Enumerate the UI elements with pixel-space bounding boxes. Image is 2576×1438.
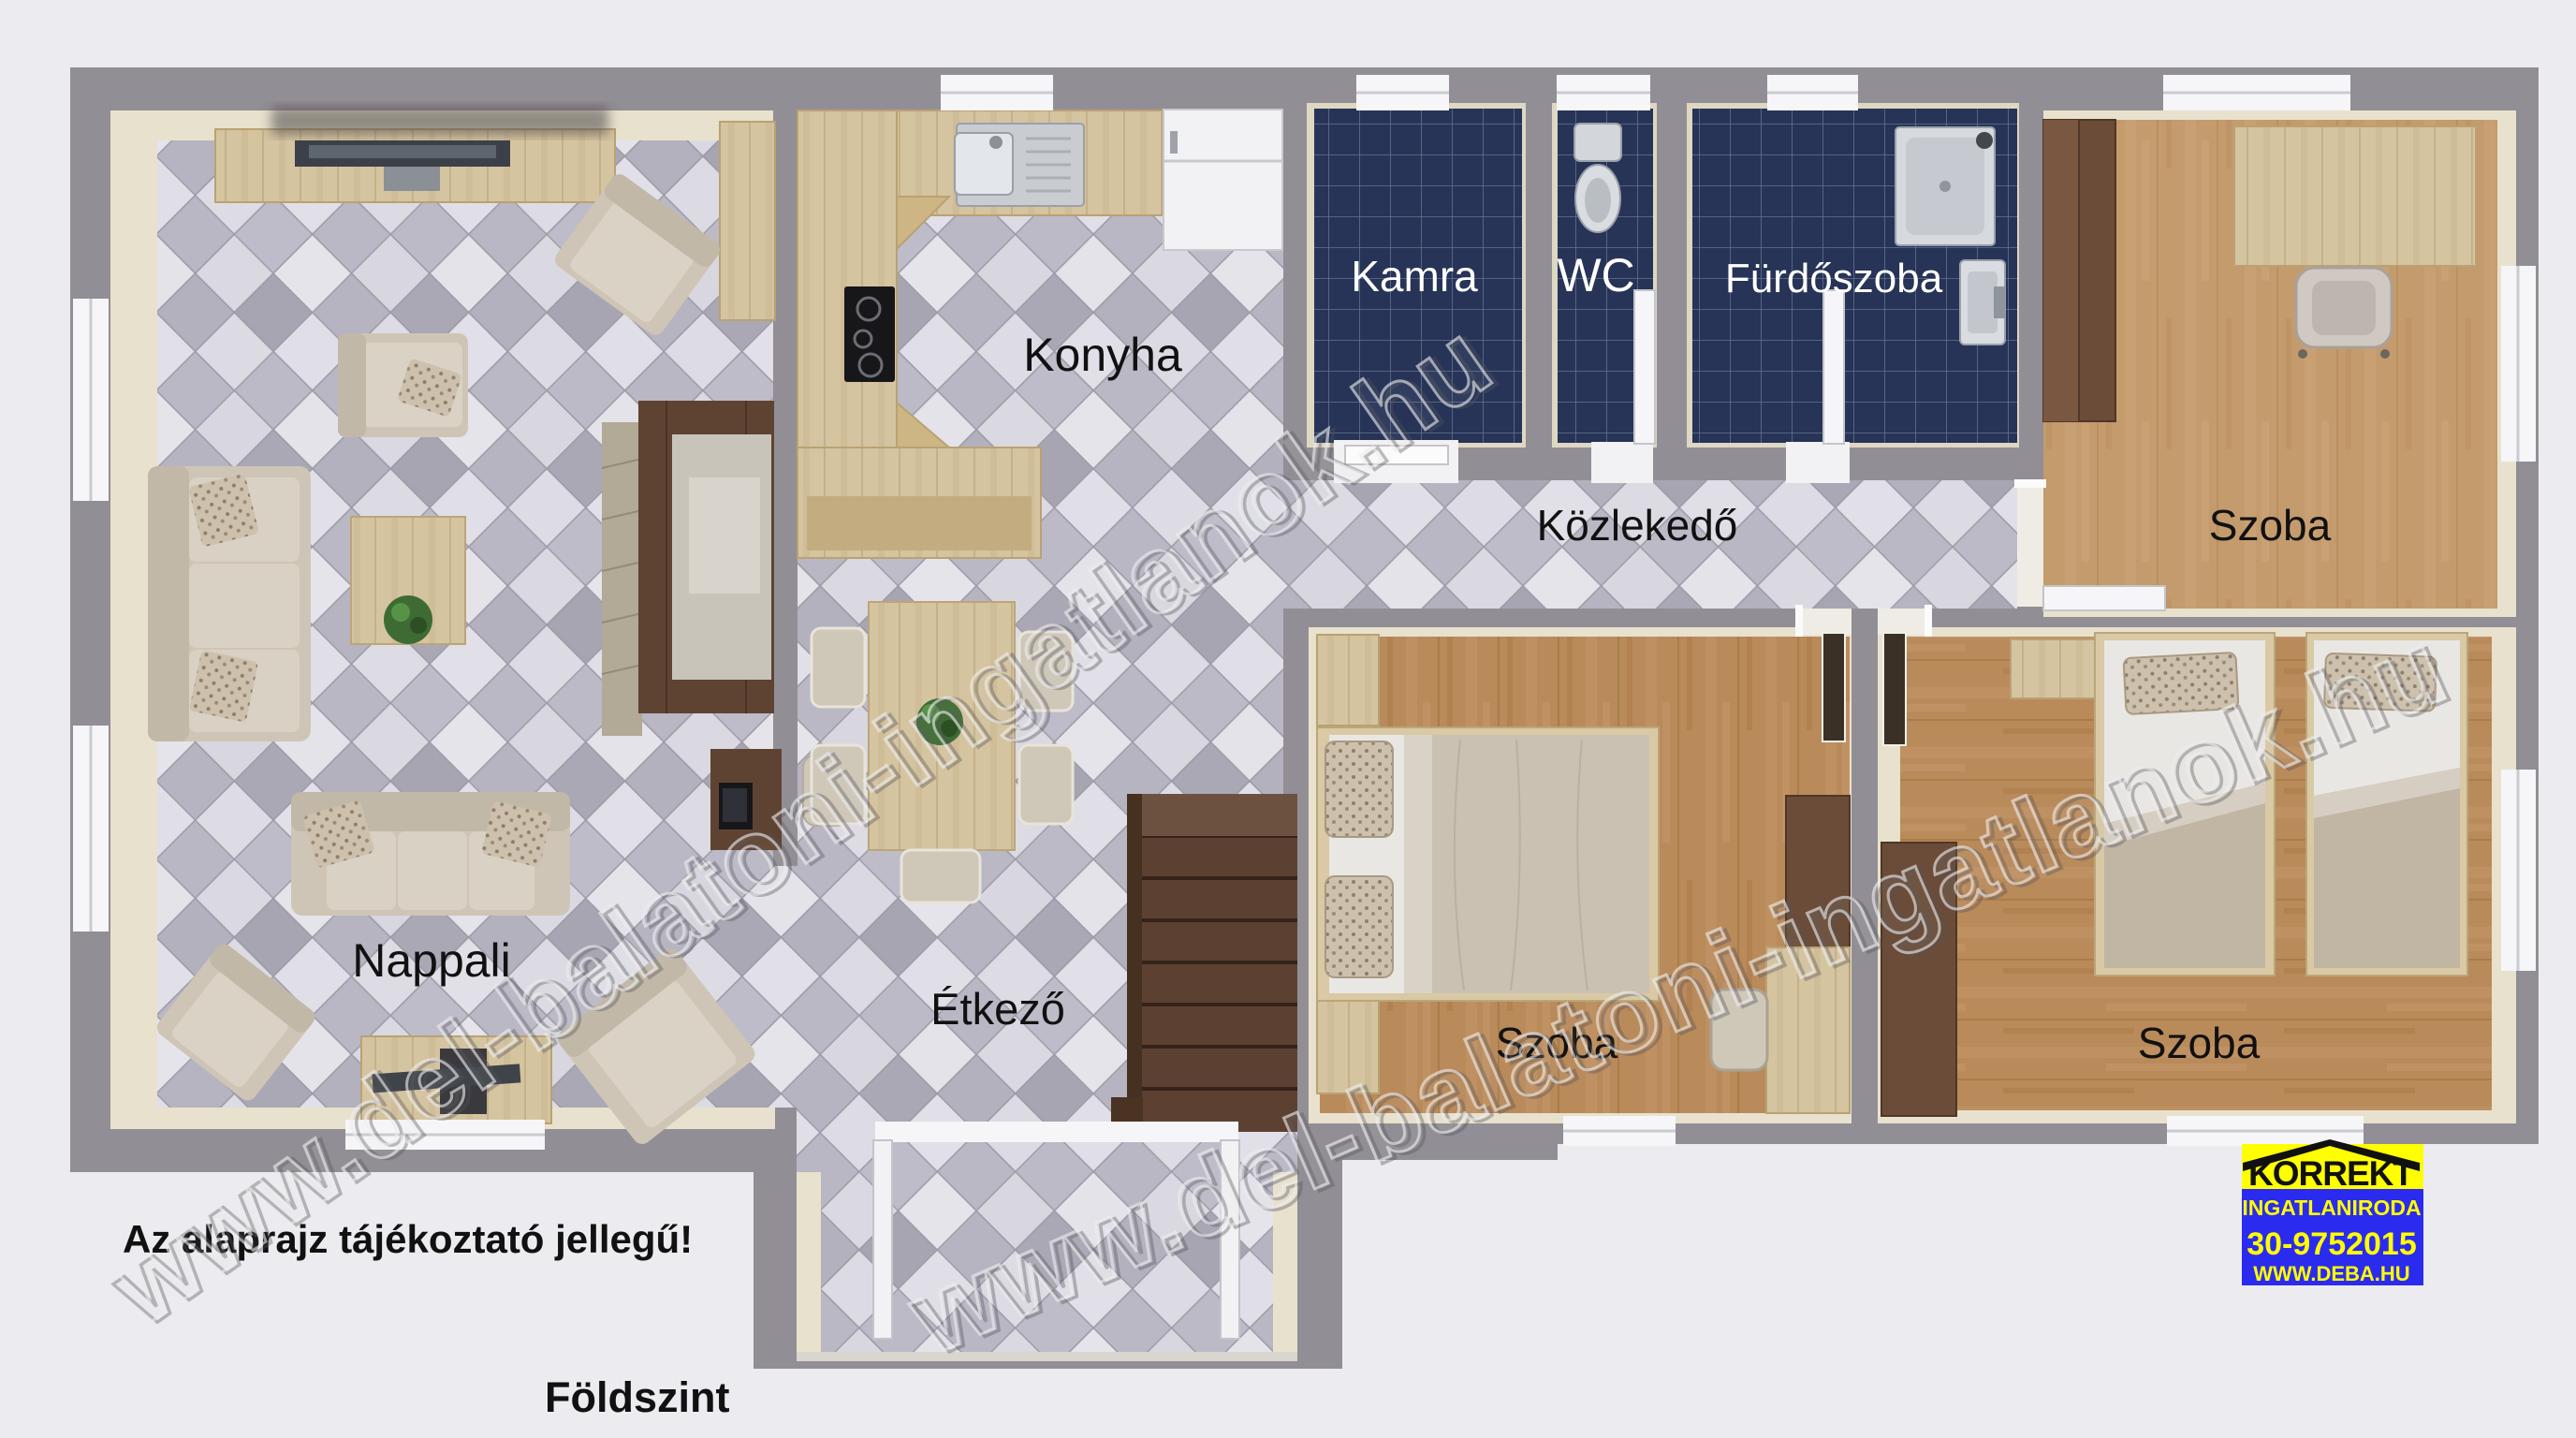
- svg-text:Szoba: Szoba: [2138, 1019, 2261, 1067]
- svg-text:Étkező: Étkező: [930, 984, 1065, 1034]
- svg-text:WC: WC: [1557, 249, 1634, 301]
- svg-text:Földszint: Földszint: [545, 1373, 729, 1421]
- svg-text:KORREKT: KORREKT: [2248, 1154, 2414, 1193]
- svg-text:WWW.DEBA.HU: WWW.DEBA.HU: [2253, 1262, 2409, 1285]
- svg-text:INGATLANIRODA: INGATLANIRODA: [2242, 1196, 2421, 1220]
- svg-text:Közlekedő: Közlekedő: [1537, 501, 1738, 550]
- svg-text:Szoba: Szoba: [2209, 501, 2332, 550]
- svg-text:Kamra: Kamra: [1351, 252, 1478, 301]
- svg-text:30-9752015: 30-9752015: [2247, 1226, 2417, 1262]
- svg-text:Konyha: Konyha: [1023, 329, 1182, 381]
- svg-text:Fürdőszoba: Fürdőszoba: [1725, 256, 1943, 301]
